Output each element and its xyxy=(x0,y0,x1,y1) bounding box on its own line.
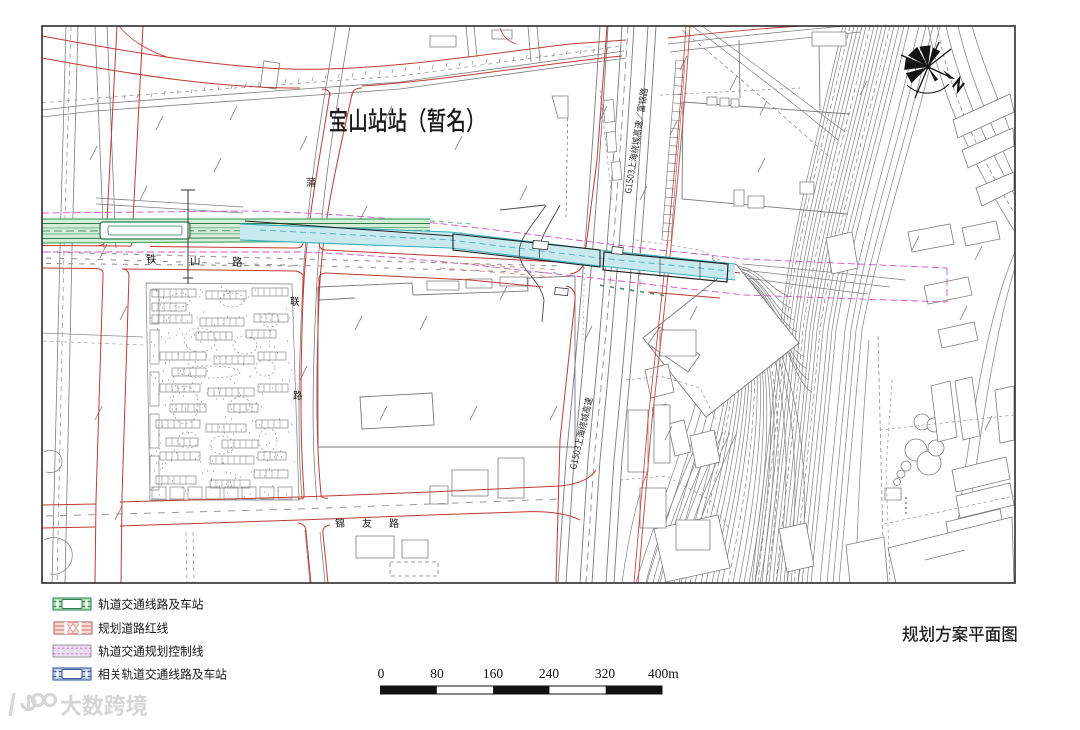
svg-text:160: 160 xyxy=(483,666,504,681)
svg-text:80: 80 xyxy=(430,666,444,681)
svg-text:400m: 400m xyxy=(648,666,679,681)
svg-text:320: 320 xyxy=(595,666,616,681)
svg-text:240: 240 xyxy=(539,666,560,681)
svg-text:0: 0 xyxy=(378,666,385,681)
